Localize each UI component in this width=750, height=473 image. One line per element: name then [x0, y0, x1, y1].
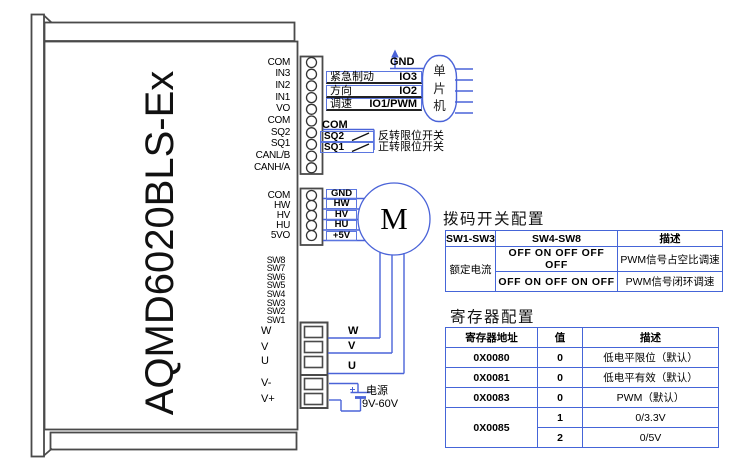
signal-label-direction: 方向	[330, 86, 352, 96]
dip-table-title: 拨码开关配置	[443, 207, 545, 229]
reg-desc-0x0083: PWM（默认）	[583, 388, 719, 408]
reg-desc-0x0085-2: 0/5V	[583, 428, 719, 448]
pin-label-vo: VO	[245, 104, 290, 114]
pin-label-in3: IN3	[245, 69, 290, 79]
motor-symbol: M	[379, 202, 409, 236]
dip-sw-setting-1: OFF ON OFF OFF OFF	[496, 247, 618, 272]
pin-label-com3: COM	[245, 191, 290, 201]
reg-desc-0x0085-1: 0/3.3V	[583, 408, 719, 428]
phase-wire-w: W	[348, 326, 358, 337]
pin-label-u: U	[261, 356, 291, 367]
dip-desc-2: PWM信号闭环调速	[618, 272, 723, 292]
reg-desc-0x0080: 低电平限位（默认）	[583, 348, 719, 368]
mcu-gnd-label: GND	[390, 57, 414, 68]
reg-addr-0x0083: 0X0083	[446, 388, 538, 408]
reg-val-0x0081: 0	[538, 368, 583, 388]
sq2-box: SQ2	[320, 131, 374, 142]
pin-label-v: V	[261, 342, 291, 353]
dip-table-row-1: 额定电流 OFF ON OFF OFF OFF PWM信号占空比调速	[446, 247, 723, 272]
dip-table-header-row: SW1-SW3 SW4-SW8 描述	[446, 231, 723, 247]
hall-wire-hw: HW	[326, 199, 357, 209]
reg-header-desc: 描述	[583, 328, 719, 348]
signal-row-io3: 紧急制动 IO3	[326, 71, 422, 84]
io3-label: IO3	[399, 72, 417, 82]
heatsink-plate	[32, 15, 45, 457]
reg-addr-0x0080: 0X0080	[446, 348, 538, 368]
sq1-box: SQ1	[320, 142, 374, 153]
hall-wire-gnd: GND	[326, 189, 357, 199]
pin-label-v-minus: V-	[261, 378, 291, 389]
reg-header-value: 值	[538, 328, 583, 348]
reg-row-0x0085-opt1: 0X0085 1 0/3.3V	[446, 408, 719, 428]
reg-table-title: 寄存器配置	[450, 305, 535, 327]
reg-val-0x0083: 0	[538, 388, 583, 408]
battery-plus-icon	[350, 387, 355, 392]
reg-val-0x0080: 0	[538, 348, 583, 368]
reg-val-0x0085-1: 1	[538, 408, 583, 428]
wiring-diagram: AQMD6020BLS-Ex COM IN3 IN2 IN1 VO COM SQ…	[0, 0, 750, 473]
pin-label-5vo: 5VO	[245, 231, 290, 241]
hall-wire-hu: HU	[326, 220, 357, 230]
power-supply-range: 9V-60V	[362, 399, 398, 410]
pin-label-in1: IN1	[245, 93, 290, 103]
mcu-label: 单 片 机	[425, 63, 454, 116]
pin-label-com2: COM	[245, 116, 290, 126]
dip-desc-1: PWM信号占空比调速	[618, 247, 723, 272]
pin-label-hv: HV	[245, 211, 290, 221]
pin-label-canlb: CANL/B	[245, 151, 290, 161]
hall-wire-hv: HV	[326, 210, 357, 220]
reg-desc-0x0081: 低电平有效（默认）	[583, 368, 719, 388]
pin-label-sw1: SW1	[255, 316, 285, 325]
reg-addr-0x0081: 0X0081	[446, 368, 538, 388]
reg-val-0x0085-2: 2	[538, 428, 583, 448]
signal-row-io1-pwm: 调速 IO1/PWM	[326, 98, 422, 111]
hall-wire-5v: +5V	[326, 231, 357, 241]
register-table: 寄存器地址 值 描述 0X0080 0 低电平限位（默认） 0X0081 0 低…	[445, 327, 719, 448]
reverse-limit-label: 反转限位开关	[378, 131, 444, 142]
pin-label-hw: HW	[245, 201, 290, 211]
phase-wire-v: V	[348, 341, 355, 352]
reg-addr-0x0085: 0X0085	[446, 408, 538, 448]
pin-label-sq2: SQ2	[245, 128, 290, 138]
pin-label-v-plus: V+	[261, 394, 291, 405]
pin-label-sq1: SQ1	[245, 139, 290, 149]
pin-label-com1: COM	[245, 58, 290, 68]
dip-sw-setting-2: OFF ON OFF ON OFF	[496, 272, 618, 292]
dip-header-sw1-sw3: SW1-SW3	[446, 231, 496, 247]
signal-label-speed: 调速	[330, 99, 352, 109]
io2-label: IO2	[399, 86, 417, 96]
pin-label-w: W	[261, 326, 291, 337]
reg-header-addr: 寄存器地址	[446, 328, 538, 348]
reg-row-0x0081: 0X0081 0 低电平有效（默认）	[446, 368, 719, 388]
phase-wire-u: U	[348, 361, 356, 372]
signal-label-brake: 紧急制动	[330, 72, 374, 82]
pin-label-canha: CANH/A	[245, 163, 290, 173]
dip-rated-current-cell: 额定电流	[446, 247, 496, 292]
reg-table-header-row: 寄存器地址 值 描述	[446, 328, 719, 348]
reg-row-0x0083: 0X0083 0 PWM（默认）	[446, 388, 719, 408]
pin-label-hu: HU	[245, 221, 290, 231]
dip-header-sw4-sw8: SW4-SW8	[496, 231, 618, 247]
forward-limit-label: 正转限位开关	[378, 142, 444, 153]
dip-header-desc: 描述	[618, 231, 723, 247]
limit-com-label: COM	[322, 120, 348, 131]
dip-switch-table: SW1-SW3 SW4-SW8 描述 额定电流 OFF ON OFF OFF O…	[445, 230, 723, 292]
pin-label-in2: IN2	[245, 81, 290, 91]
io1-pwm-label: IO1/PWM	[369, 99, 417, 109]
reg-row-0x0080: 0X0080 0 低电平限位（默认）	[446, 348, 719, 368]
power-supply-label: 电源	[366, 386, 388, 397]
device-model: AQMD6020BLS-Ex	[138, 33, 182, 453]
signal-row-io2: 方向 IO2	[326, 85, 422, 98]
